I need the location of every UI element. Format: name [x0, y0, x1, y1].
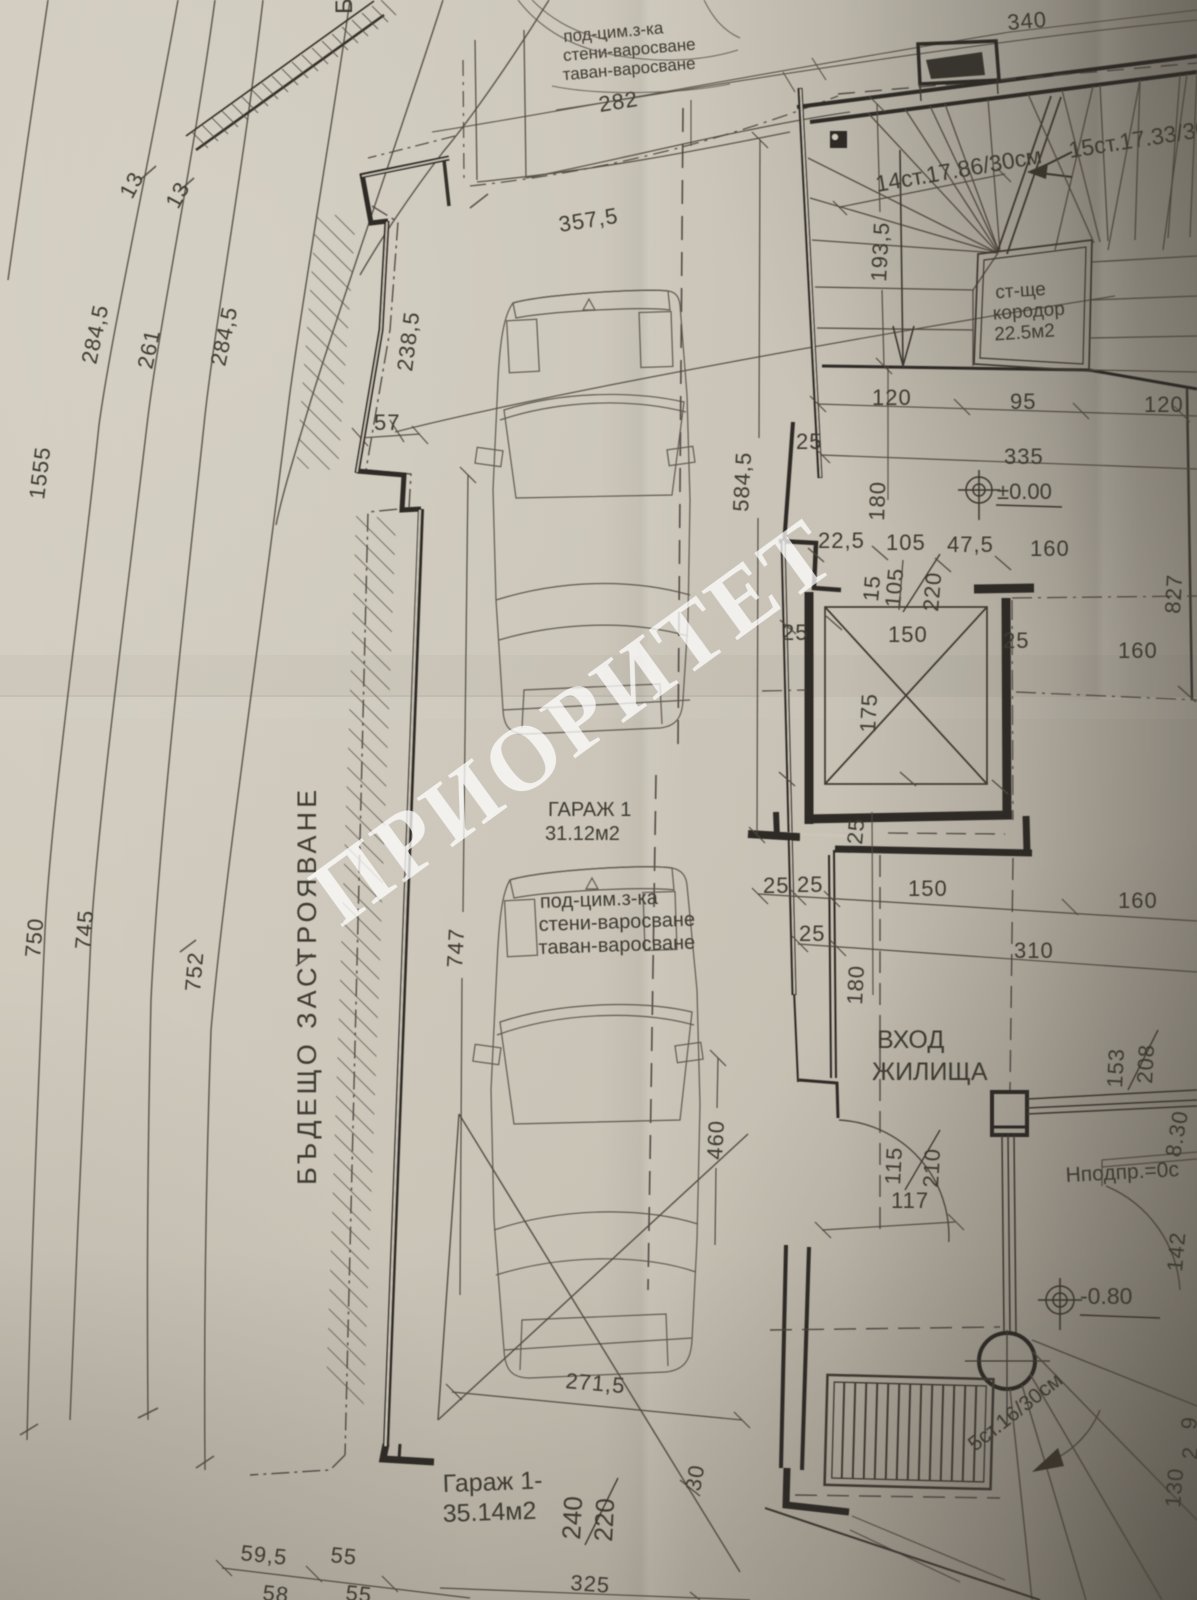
svg-text:120: 120 — [1144, 392, 1184, 417]
svg-text:25: 25 — [797, 872, 823, 897]
svg-text:180: 180 — [864, 481, 890, 522]
svg-text:335: 335 — [1004, 444, 1044, 469]
svg-text:240: 240 — [556, 1495, 588, 1540]
svg-text:Гараж 1-: Гараж 1- — [442, 1467, 543, 1498]
svg-text:ВХОД: ВХОД — [877, 1026, 944, 1054]
svg-text:153: 153 — [1102, 1047, 1129, 1088]
svg-text:210: 210 — [918, 1147, 945, 1188]
svg-text:-0.80: -0.80 — [1080, 1283, 1132, 1309]
svg-text:160: 160 — [1118, 888, 1158, 913]
svg-text:120: 120 — [872, 385, 912, 410]
svg-text:95: 95 — [1010, 389, 1036, 414]
svg-text:25: 25 — [799, 921, 825, 946]
svg-text:220: 220 — [918, 571, 946, 613]
svg-text:115: 115 — [880, 1146, 907, 1185]
svg-text:59,5: 59,5 — [239, 1540, 288, 1570]
svg-text:175: 175 — [855, 692, 882, 733]
svg-text:584,5: 584,5 — [728, 451, 756, 512]
svg-text:271,5: 271,5 — [565, 1368, 627, 1398]
svg-text:150: 150 — [908, 876, 948, 901]
svg-text:117: 117 — [891, 1188, 929, 1213]
svg-text:160: 160 — [1030, 536, 1070, 561]
svg-text:25: 25 — [763, 873, 789, 898]
svg-text:105: 105 — [886, 530, 926, 555]
svg-text:750: 750 — [20, 917, 48, 959]
svg-text:25: 25 — [1003, 628, 1029, 653]
svg-text:35.14м2: 35.14м2 — [442, 1497, 537, 1528]
svg-text:220: 220 — [588, 1497, 620, 1542]
svg-text:160: 160 — [1118, 638, 1158, 663]
svg-text:142: 142 — [1162, 1231, 1190, 1273]
svg-text:150: 150 — [888, 622, 928, 647]
svg-text:752: 752 — [180, 951, 208, 993]
svg-text:55: 55 — [344, 1580, 373, 1600]
svg-text:9: 9 — [1176, 1415, 1197, 1430]
svg-text:ГАРАЖ 1: ГАРАЖ 1 — [548, 799, 631, 821]
svg-text:22.5м2: 22.5м2 — [994, 320, 1056, 345]
svg-text:747: 747 — [442, 927, 469, 968]
svg-text:2: 2 — [1177, 1445, 1197, 1460]
svg-text:105: 105 — [880, 567, 908, 609]
svg-text:208: 208 — [1132, 1043, 1159, 1084]
svg-text:15: 15 — [858, 574, 885, 603]
svg-text:Б: Б — [331, 0, 358, 14]
svg-text:180: 180 — [842, 964, 869, 1005]
svg-text:130: 130 — [1160, 1467, 1188, 1509]
svg-text:58: 58 — [261, 1580, 290, 1600]
svg-text:25: 25 — [842, 817, 869, 846]
svg-text:30: 30 — [680, 1462, 709, 1492]
svg-text:57: 57 — [374, 410, 400, 435]
svg-text:ЖИЛИЩА: ЖИЛИЩА — [872, 1058, 988, 1086]
svg-text:310: 310 — [1014, 938, 1054, 963]
svg-text:под-цим.з-ка: под-цим.з-ка — [540, 887, 659, 913]
svg-text:47,5: 47,5 — [947, 532, 994, 557]
svg-text:193,5: 193,5 — [866, 221, 894, 282]
svg-text:340: 340 — [1006, 7, 1048, 35]
svg-text:827: 827 — [1160, 573, 1187, 614]
svg-text:31.12м2: 31.12м2 — [545, 823, 620, 845]
svg-text:±0.00: ±0.00 — [997, 479, 1052, 504]
svg-text:460: 460 — [702, 1119, 729, 1160]
svg-text:325: 325 — [570, 1570, 611, 1598]
svg-text:25: 25 — [796, 429, 822, 454]
svg-text:55: 55 — [329, 1542, 358, 1570]
svg-text:745: 745 — [70, 909, 98, 951]
